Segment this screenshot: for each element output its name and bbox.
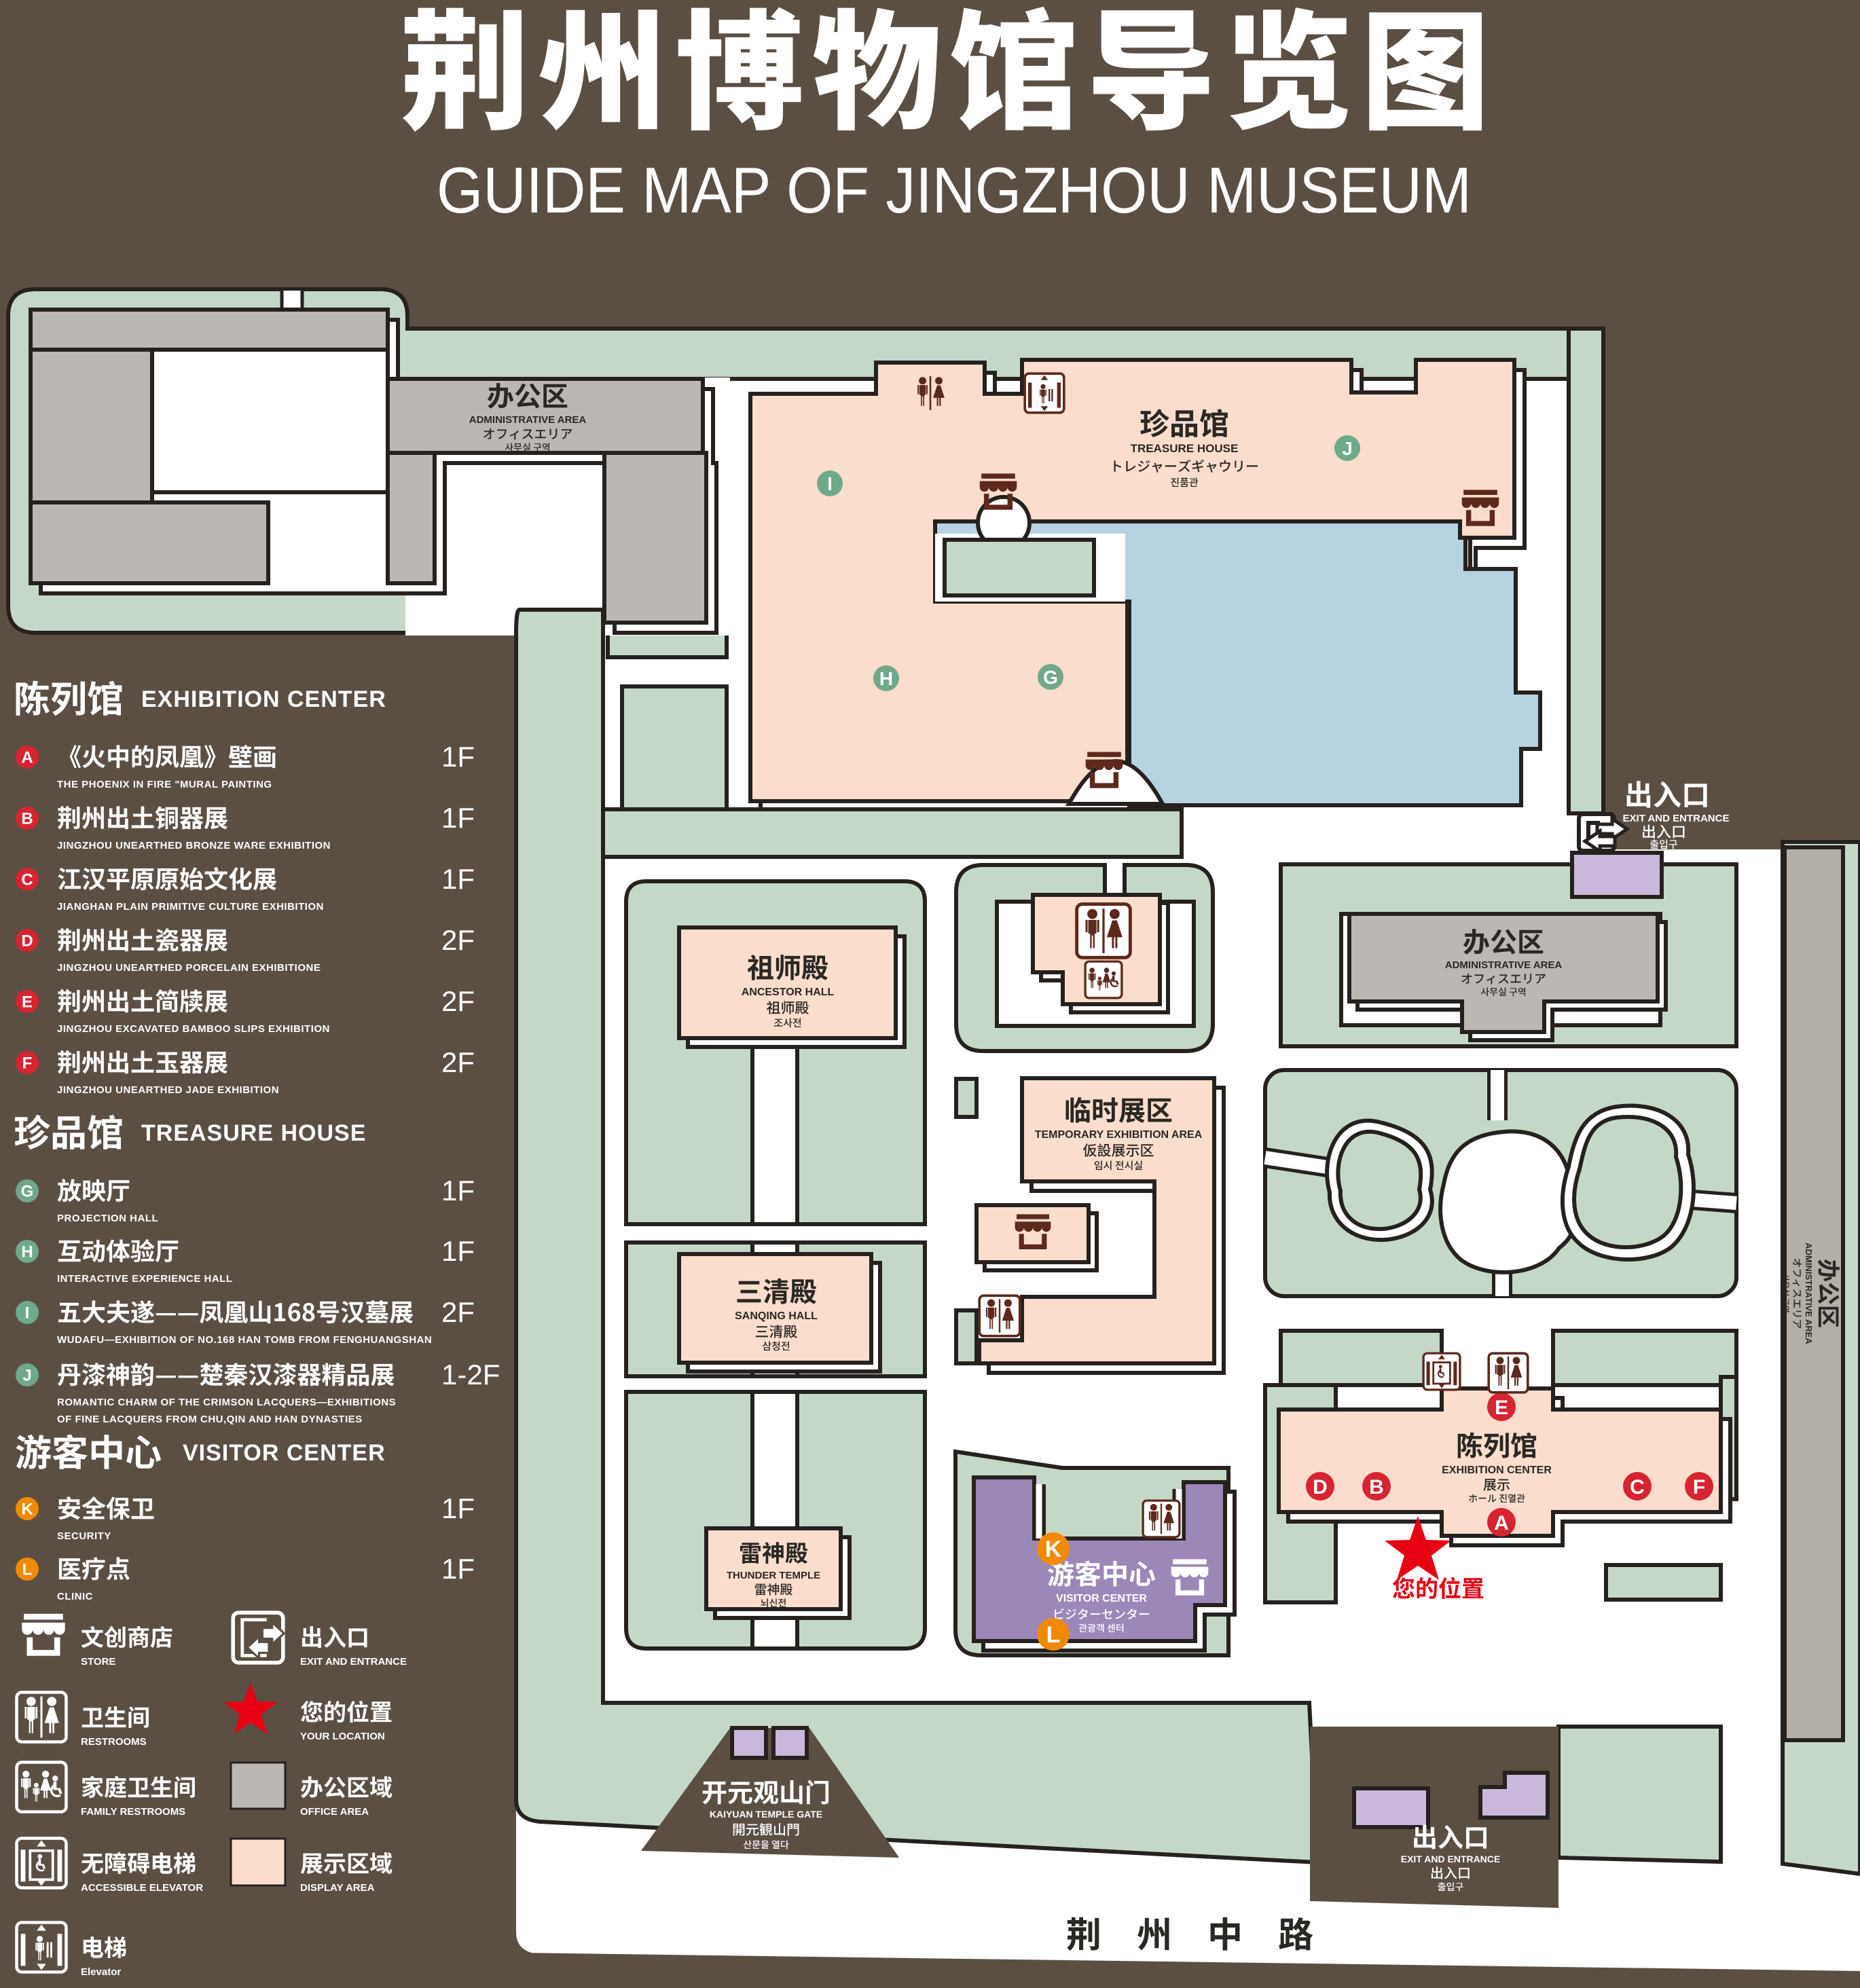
svg-text:K: K (21, 1501, 33, 1519)
svg-text:JIANGHAN PLAIN PRIMITIVE CULTU: JIANGHAN PLAIN PRIMITIVE CULTURE EXHIBIT… (57, 901, 324, 913)
svg-text:1-2F: 1-2F (441, 1359, 500, 1391)
svg-text:SECURITY: SECURITY (57, 1530, 111, 1542)
svg-text:B: B (1369, 1476, 1384, 1498)
svg-text:C: C (1630, 1476, 1645, 1498)
svg-text:I: I (827, 473, 833, 494)
svg-text:KAIYUAN TEMPLE GATE: KAIYUAN TEMPLE GATE (710, 1809, 822, 1820)
svg-text:JINGZHOU UNEARTHED BRONZE WARE: JINGZHOU UNEARTHED BRONZE WARE EXHIBITIO… (57, 840, 331, 851)
svg-text:THUNDER TEMPLE: THUNDER TEMPLE (727, 1570, 820, 1581)
svg-text:2F: 2F (441, 1296, 475, 1328)
svg-text:B: B (21, 810, 33, 828)
svg-text:EXHIBITION CENTER: EXHIBITION CENTER (141, 686, 386, 712)
svg-text:JINGZHOU UNEARTHED PORCELAIN E: JINGZHOU UNEARTHED PORCELAIN EXHIBITIONE (57, 962, 321, 974)
svg-text:ADMINISTRATIVE AREA: ADMINISTRATIVE AREA (1445, 959, 1563, 971)
svg-text:C: C (21, 871, 33, 889)
svg-text:STORE: STORE (81, 1656, 115, 1668)
svg-text:1F: 1F (441, 863, 475, 895)
svg-text:A: A (1494, 1512, 1509, 1534)
svg-text:G: G (21, 1183, 34, 1201)
svg-text:JINGZHOU EXCAVATED BAMBOO SLIP: JINGZHOU EXCAVATED BAMBOO SLIPS EXHIBITI… (57, 1023, 330, 1035)
svg-text:1F: 1F (441, 1235, 475, 1267)
svg-text:JINGZHOU UNEARTHED JADE EXHIBI: JINGZHOU UNEARTHED JADE EXHIBITION (57, 1084, 279, 1096)
svg-text:2F: 2F (441, 985, 475, 1017)
svg-text:ADMINISTRATIVE AREA: ADMINISTRATIVE AREA (1804, 1242, 1814, 1344)
svg-text:J: J (1342, 438, 1353, 459)
svg-text:1F: 1F (441, 741, 475, 773)
svg-text:EXIT AND ENTRANCE: EXIT AND ENTRANCE (1401, 1854, 1501, 1864)
svg-text:EXIT AND ENTRANCE: EXIT AND ENTRANCE (1623, 813, 1730, 824)
svg-text:D: D (1313, 1476, 1328, 1498)
svg-text:OF FINE LACQUERS FROM CHU,QIN: OF FINE LACQUERS FROM CHU,QIN AND HAN DY… (57, 1414, 363, 1425)
svg-text:E: E (22, 993, 33, 1012)
svg-text:INTERACTIVE EXPERIENCE HALL: INTERACTIVE EXPERIENCE HALL (57, 1273, 233, 1285)
svg-text:THE PHOENIX IN FIRE "MURAL PAI: THE PHOENIX IN FIRE "MURAL PAINTING (57, 779, 272, 790)
svg-text:TEMPORARY EXHIBITION AREA: TEMPORARY EXHIBITION AREA (1035, 1129, 1203, 1141)
svg-text:Elevator: Elevator (81, 1966, 121, 1978)
svg-text:K: K (1045, 1536, 1062, 1562)
svg-text:EXIT AND ENTRANCE: EXIT AND ENTRANCE (300, 1656, 407, 1668)
svg-text:I: I (25, 1304, 30, 1323)
svg-text:YOUR LOCATION: YOUR LOCATION (300, 1731, 385, 1742)
svg-text:DISPLAY AREA: DISPLAY AREA (300, 1882, 375, 1894)
svg-text:E: E (1495, 1397, 1508, 1419)
svg-text:ROMANTIC CHARM OF THE CRIMSON: ROMANTIC CHARM OF THE CRIMSON LACQUERS—E… (57, 1397, 396, 1408)
svg-text:VISITOR CENTER: VISITOR CENTER (183, 1440, 386, 1466)
svg-text:F: F (1693, 1476, 1705, 1498)
svg-text:EXHIBITION CENTER: EXHIBITION CENTER (1442, 1465, 1552, 1476)
svg-text:ADMINISTRATIVE AREA: ADMINISTRATIVE AREA (469, 414, 587, 426)
svg-text:2F: 2F (441, 924, 475, 956)
svg-text:1F: 1F (441, 1175, 475, 1207)
svg-text:PROJECTION HALL: PROJECTION HALL (57, 1213, 158, 1224)
svg-text:J: J (22, 1367, 31, 1385)
svg-text:L: L (22, 1561, 33, 1579)
svg-text:FAMILY RESTROOMS: FAMILY RESTROOMS (81, 1806, 185, 1818)
svg-text:1F: 1F (441, 802, 475, 834)
svg-text:TREASURE HOUSE: TREASURE HOUSE (141, 1120, 366, 1146)
svg-text:F: F (22, 1054, 33, 1073)
svg-text:1F: 1F (441, 1492, 475, 1524)
svg-text:GUIDE MAP OF JINGZHOU MUSEUM: GUIDE MAP OF JINGZHOU MUSEUM (437, 154, 1472, 227)
svg-text:D: D (21, 932, 33, 951)
svg-text:VISITOR CENTER: VISITOR CENTER (1056, 1593, 1147, 1604)
svg-text:OFFICE AREA: OFFICE AREA (300, 1806, 369, 1818)
svg-text:RESTROOMS: RESTROOMS (81, 1736, 147, 1748)
svg-text:1F: 1F (441, 1553, 475, 1585)
svg-text:SANQING HALL: SANQING HALL (735, 1310, 818, 1322)
svg-text:ACCESSIBLE ELEVATOR: ACCESSIBLE ELEVATOR (81, 1882, 203, 1894)
svg-text:TREASURE HOUSE: TREASURE HOUSE (1131, 442, 1239, 455)
svg-text:CLINIC: CLINIC (57, 1591, 93, 1602)
svg-text:H: H (21, 1243, 33, 1262)
svg-text:ANCESTOR HALL: ANCESTOR HALL (742, 987, 835, 998)
svg-text:G: G (1043, 667, 1058, 688)
svg-text:A: A (21, 749, 33, 767)
svg-text:WUDAFU—EXHIBITION OF NO.168 HA: WUDAFU—EXHIBITION OF NO.168 HAN TOMB FRO… (57, 1334, 432, 1346)
svg-text:2F: 2F (441, 1046, 475, 1078)
svg-text:L: L (1046, 1622, 1061, 1648)
svg-text:H: H (879, 668, 893, 689)
